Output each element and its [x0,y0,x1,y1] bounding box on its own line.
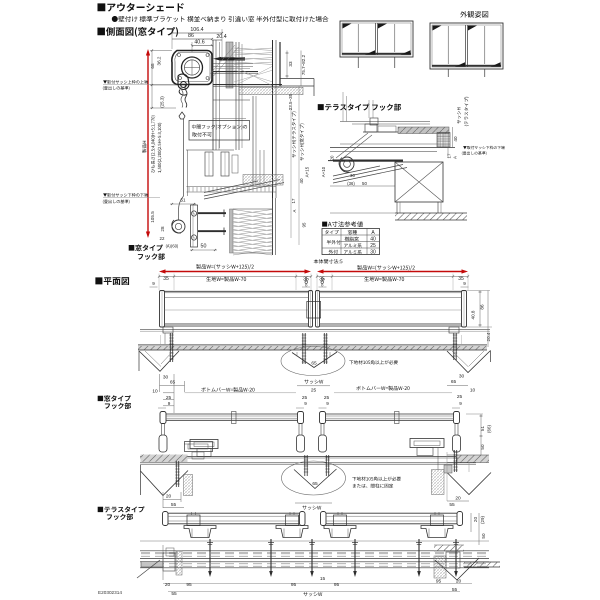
svg-text:20: 20 [473,517,478,523]
svg-text:95: 95 [436,579,442,585]
svg-text:50: 50 [201,244,207,250]
svg-text:20.4: 20.4 [486,332,491,341]
svg-text:28: 28 [160,226,165,232]
svg-text:40: 40 [299,178,304,184]
svg-text:15: 15 [320,576,326,582]
svg-text:30: 30 [163,375,169,381]
svg-text:9: 9 [326,401,329,406]
svg-text:40: 40 [370,237,376,243]
svg-text:33: 33 [288,61,293,67]
svg-text:95: 95 [302,222,307,227]
svg-text:65: 65 [312,481,318,487]
svg-text:30: 30 [350,173,355,178]
svg-text:22: 22 [160,236,165,241]
svg-text:86: 86 [188,33,194,39]
svg-text:40.6: 40.6 [194,40,204,46]
svg-text:A: A [453,156,458,159]
svg-text:55: 55 [449,502,455,508]
svg-text:68: 68 [150,63,155,69]
svg-text:A+10: A+10 [321,166,326,177]
svg-text:9: 9 [463,281,466,286]
svg-text:50: 50 [481,533,486,539]
svg-text:95: 95 [334,582,340,588]
svg-text:E20302314: E20302314 [98,590,122,595]
svg-text:25: 25 [457,394,463,400]
svg-text:95: 95 [186,582,192,588]
svg-text:(25.3): (25.3) [160,96,165,108]
svg-text:75.7~82.2: 75.7~82.2 [301,54,306,75]
svg-text:55: 55 [171,502,177,508]
svg-text:20: 20 [455,496,461,502]
svg-text:17: 17 [447,153,452,158]
svg-text:20: 20 [330,155,335,160]
svg-text:20.4: 20.4 [216,34,226,40]
svg-text:55: 55 [171,591,177,597]
svg-text:25: 25 [370,243,376,249]
svg-text:40: 40 [453,136,458,142]
svg-text:65: 65 [451,379,457,385]
svg-text:50: 50 [362,181,367,186]
svg-text:20: 20 [165,582,171,588]
svg-text:30: 30 [459,374,465,380]
svg-text:36.2: 36.2 [157,56,162,65]
svg-text:55: 55 [452,587,458,593]
svg-text:30: 30 [370,250,376,256]
svg-text:65: 65 [311,361,317,367]
svg-text:65: 65 [170,380,176,386]
svg-text:9: 9 [304,401,307,406]
svg-text:9: 9 [459,401,462,406]
svg-text:(29): (29) [480,516,485,524]
svg-text:A+15: A+15 [305,166,310,177]
svg-text:A: A [292,209,297,212]
svg-text:105.5: 105.5 [150,211,155,223]
svg-text:23.5~35: 23.5~35 [288,93,293,110]
svg-text:9: 9 [168,401,171,406]
svg-text:10: 10 [470,388,476,394]
svg-text:(36): (36) [347,181,355,186]
svg-text:9: 9 [152,281,155,286]
svg-text:51: 51 [180,198,186,203]
svg-text:35: 35 [163,276,169,282]
svg-text:25: 25 [311,388,317,394]
svg-text:40.8: 40.8 [471,310,476,319]
svg-text:20: 20 [166,494,172,500]
svg-text:95: 95 [291,582,297,588]
svg-text:20: 20 [456,579,462,585]
svg-text:(66): (66) [487,425,492,433]
svg-text:10: 10 [152,389,158,395]
svg-text:17: 17 [291,198,296,203]
